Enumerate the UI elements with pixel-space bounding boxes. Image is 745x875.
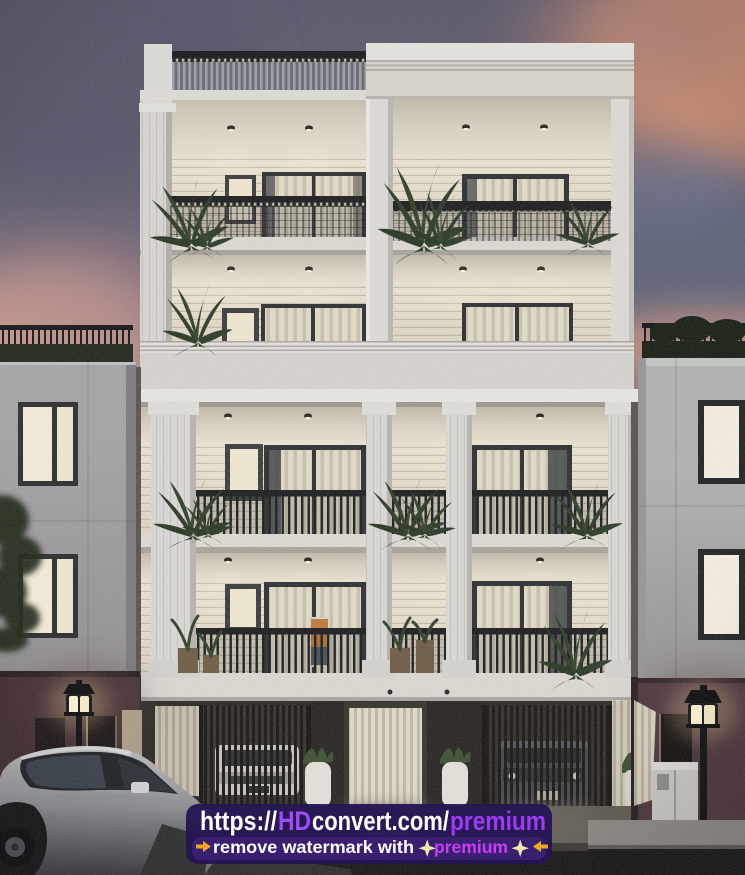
svg-text:https://: https:// xyxy=(200,806,277,836)
svg-text:premium: premium xyxy=(434,837,508,857)
svg-text:premium: premium xyxy=(450,806,546,836)
svg-text:convert.com/: convert.com/ xyxy=(312,806,449,836)
svg-text:HD: HD xyxy=(278,806,311,836)
svg-text:remove watermark with: remove watermark with xyxy=(213,837,414,857)
